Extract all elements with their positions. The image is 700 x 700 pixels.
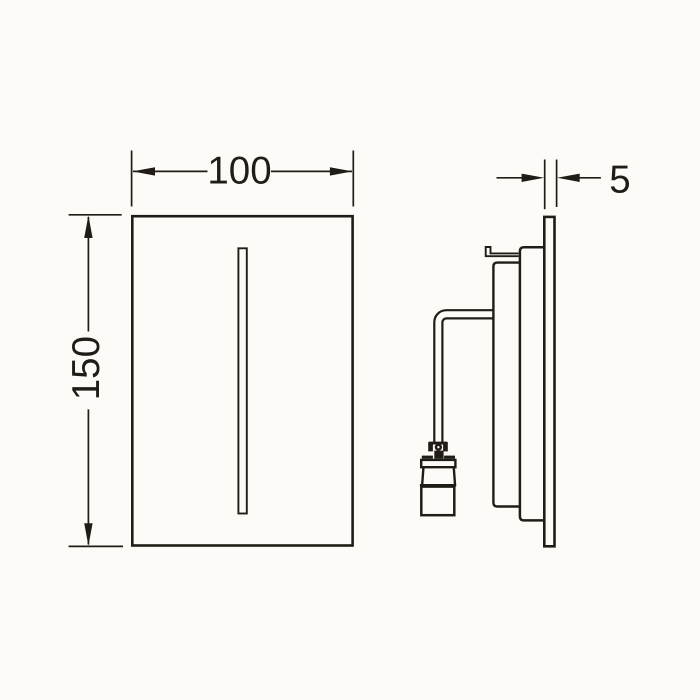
svg-text:100: 100 xyxy=(207,150,271,193)
svg-text:150: 150 xyxy=(65,336,108,400)
svg-text:5: 5 xyxy=(609,158,630,201)
